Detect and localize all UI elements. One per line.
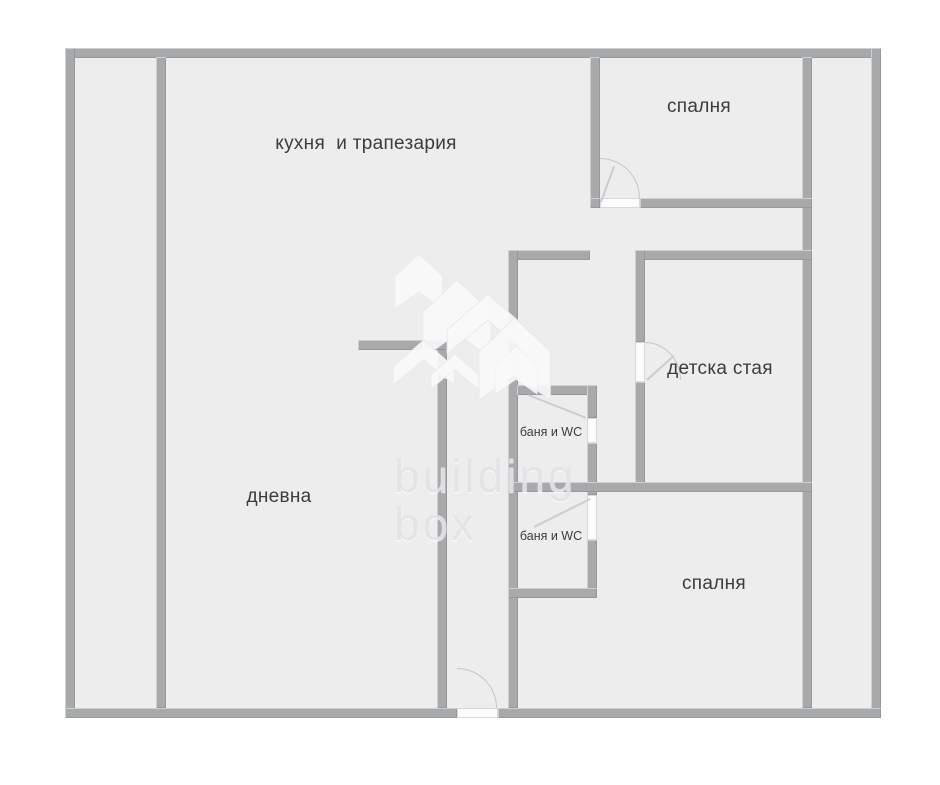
kids-room-door <box>635 342 645 382</box>
bedroom-top-door <box>600 198 640 208</box>
room-label-kids-room: детска стая <box>667 358 773 380</box>
watermark-line2: box <box>394 497 477 551</box>
wall-kids-left-b <box>635 382 645 483</box>
room-label-living-room: дневна <box>246 486 311 508</box>
room-label-kitchen-dining: кухня и трапезария <box>275 133 456 155</box>
room-label-bedroom-bottom: спалня <box>682 573 746 595</box>
building-box-logo-icon <box>385 250 581 416</box>
wall-kids-left-a <box>635 250 645 342</box>
wall-bedroom-top-left <box>590 57 600 208</box>
wall-outer-left <box>65 48 75 718</box>
wall-bedroom-top-bottom-b <box>640 198 812 208</box>
wall-outer-top <box>65 48 881 58</box>
wall-bath2-bottom <box>508 588 597 598</box>
bathroom-bottom-door <box>587 495 597 540</box>
room-label-bathroom-top: баня и WC <box>520 425 582 439</box>
wall-outer-bottom-left <box>65 708 457 718</box>
bathroom-top-door <box>587 418 597 443</box>
wall-right-strip <box>802 57 812 708</box>
watermark-line1: building <box>394 449 577 503</box>
entrance-door <box>457 708 498 718</box>
wall-left-strip <box>156 57 166 708</box>
floor-plan: building box кухня и трапезария спалня д… <box>0 0 940 785</box>
wall-bath-right-a <box>587 385 597 418</box>
room-label-bathroom-bottom: баня и WC <box>520 529 582 543</box>
wall-outer-right <box>871 48 881 718</box>
room-label-bedroom-top: спалня <box>667 96 731 118</box>
wall-outer-bottom-right <box>498 708 881 718</box>
wall-bedroom-top-bottom-a <box>590 198 600 208</box>
wall-kids-top <box>635 250 812 260</box>
